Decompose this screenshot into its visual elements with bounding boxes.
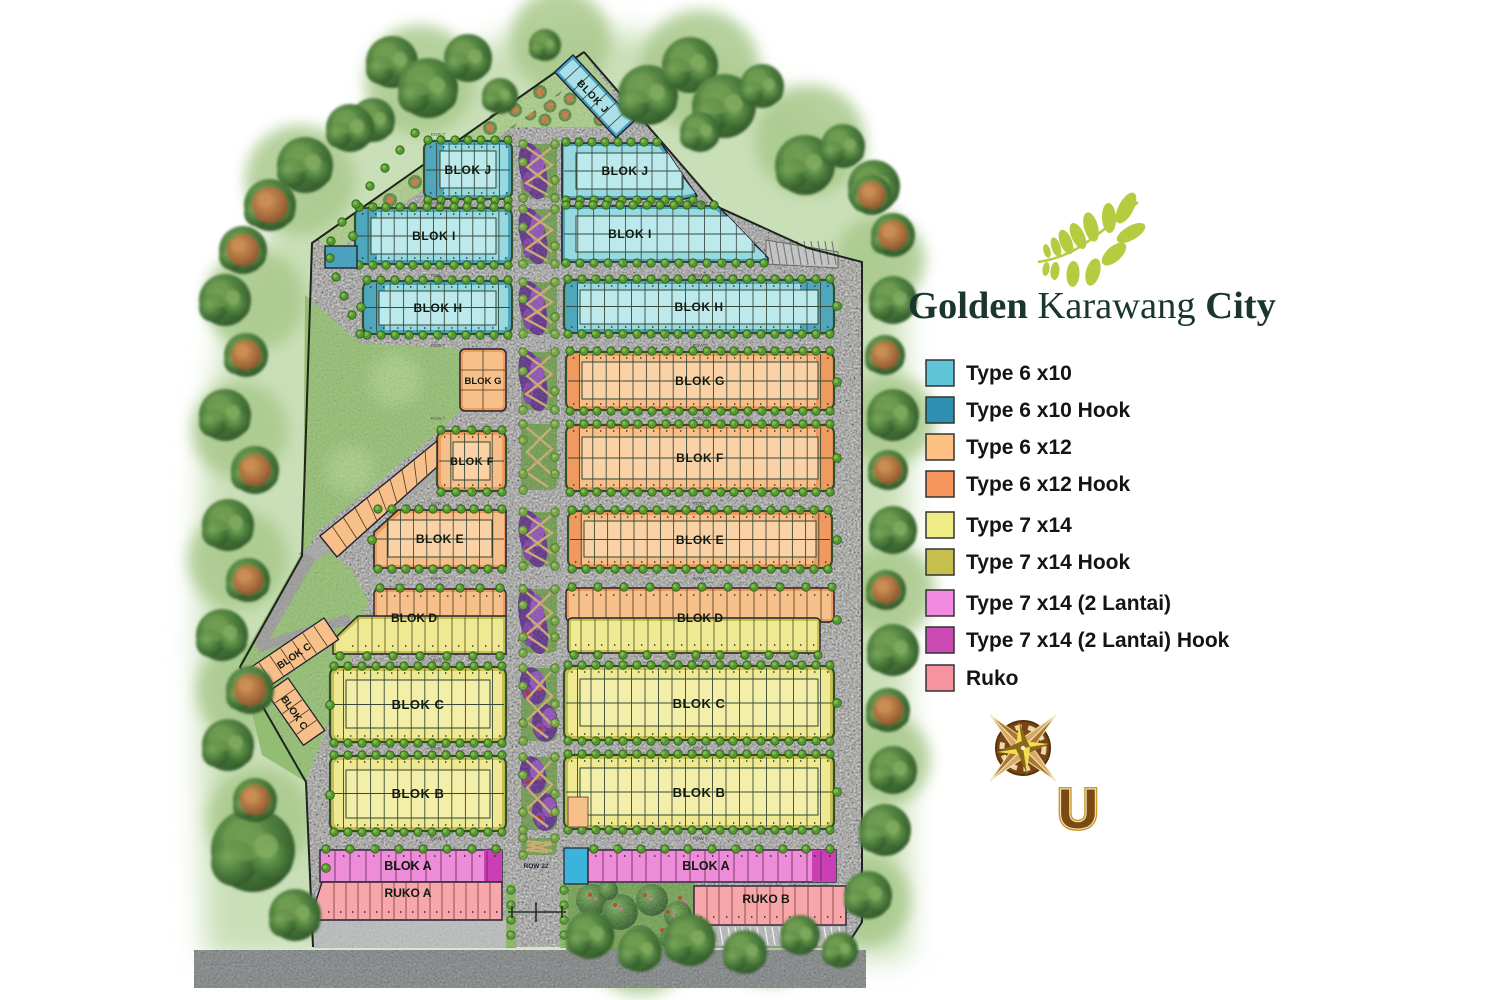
svg-text:ROW 7: ROW 7 xyxy=(431,658,446,663)
svg-text:ROW 22: ROW 22 xyxy=(524,863,549,870)
svg-text:BLOK A: BLOK A xyxy=(384,859,431,873)
svg-text:BLOK A: BLOK A xyxy=(682,859,729,873)
svg-text:Type 6 x12 Hook: Type 6 x12 Hook xyxy=(966,473,1130,496)
svg-text:ROW 7: ROW 7 xyxy=(693,343,708,348)
svg-text:ROW 7: ROW 7 xyxy=(431,836,446,841)
svg-text:BLOK H: BLOK H xyxy=(414,301,463,315)
svg-text:BLOK J: BLOK J xyxy=(444,163,491,177)
svg-text:ROW 7: ROW 7 xyxy=(431,343,446,348)
svg-text:BLOK B: BLOK B xyxy=(673,785,726,800)
svg-text:BLOK E: BLOK E xyxy=(416,532,464,546)
svg-text:Type 7 x14 Hook: Type 7 x14 Hook xyxy=(966,551,1130,574)
svg-text:ROW 7: ROW 7 xyxy=(693,576,708,581)
svg-text:BLOK J: BLOK J xyxy=(601,164,648,178)
svg-text:BLOK I: BLOK I xyxy=(412,229,456,243)
svg-text:BLOK D: BLOK D xyxy=(391,611,437,625)
svg-text:Type 7 x14 (2 Lantai): Type 7 x14 (2 Lantai) xyxy=(966,592,1171,615)
svg-text:Type 6 x10 Hook: Type 6 x10 Hook xyxy=(966,399,1130,422)
svg-text:BLOK H: BLOK H xyxy=(675,300,724,314)
svg-text:Type 6 x10: Type 6 x10 xyxy=(966,362,1072,385)
svg-text:ROW 7: ROW 7 xyxy=(693,273,708,278)
svg-text:ROW 7: ROW 7 xyxy=(693,658,708,663)
svg-text:Type 6 x12: Type 6 x12 xyxy=(966,436,1072,459)
svg-text:Golden Karawang City: Golden Karawang City xyxy=(908,285,1276,327)
svg-text:ROW 7: ROW 7 xyxy=(431,416,446,421)
svg-text:BLOK G: BLOK G xyxy=(465,376,502,387)
svg-text:Ruko: Ruko xyxy=(966,667,1019,690)
svg-text:ROW 7: ROW 7 xyxy=(431,501,446,506)
svg-text:BLOK B: BLOK B xyxy=(392,786,445,801)
svg-text:BLOK I: BLOK I xyxy=(608,227,652,241)
svg-text:ROW 7: ROW 7 xyxy=(431,201,446,206)
svg-text:ROW 7: ROW 7 xyxy=(693,501,708,506)
svg-text:ROW 7: ROW 7 xyxy=(693,746,708,751)
svg-text:BLOK E: BLOK E xyxy=(676,533,724,547)
svg-text:ROW 7: ROW 7 xyxy=(431,132,446,137)
svg-text:ROW 7: ROW 7 xyxy=(693,416,708,421)
svg-text:ROW 7: ROW 7 xyxy=(431,746,446,751)
svg-text:U: U xyxy=(1058,777,1098,840)
svg-text:BLOK C: BLOK C xyxy=(673,696,726,711)
svg-text:ROW 7: ROW 7 xyxy=(693,201,708,206)
svg-text:ROW 7: ROW 7 xyxy=(431,273,446,278)
svg-text:BLOK C: BLOK C xyxy=(392,697,445,712)
svg-text:BLOK F: BLOK F xyxy=(676,451,724,465)
svg-text:BLOK D: BLOK D xyxy=(677,611,723,625)
svg-text:BLOK F: BLOK F xyxy=(450,456,494,468)
svg-text:Type 7 x14: Type 7 x14 xyxy=(966,514,1072,537)
svg-text:RUKO A: RUKO A xyxy=(385,886,432,900)
svg-text:RUKO B: RUKO B xyxy=(742,892,790,906)
svg-text:ROW 7: ROW 7 xyxy=(693,836,708,841)
svg-text:Type 7 x14 (2 Lantai) Hook: Type 7 x14 (2 Lantai) Hook xyxy=(966,629,1230,652)
svg-text:ROW 7: ROW 7 xyxy=(431,576,446,581)
svg-text:BLOK G: BLOK G xyxy=(675,374,725,388)
